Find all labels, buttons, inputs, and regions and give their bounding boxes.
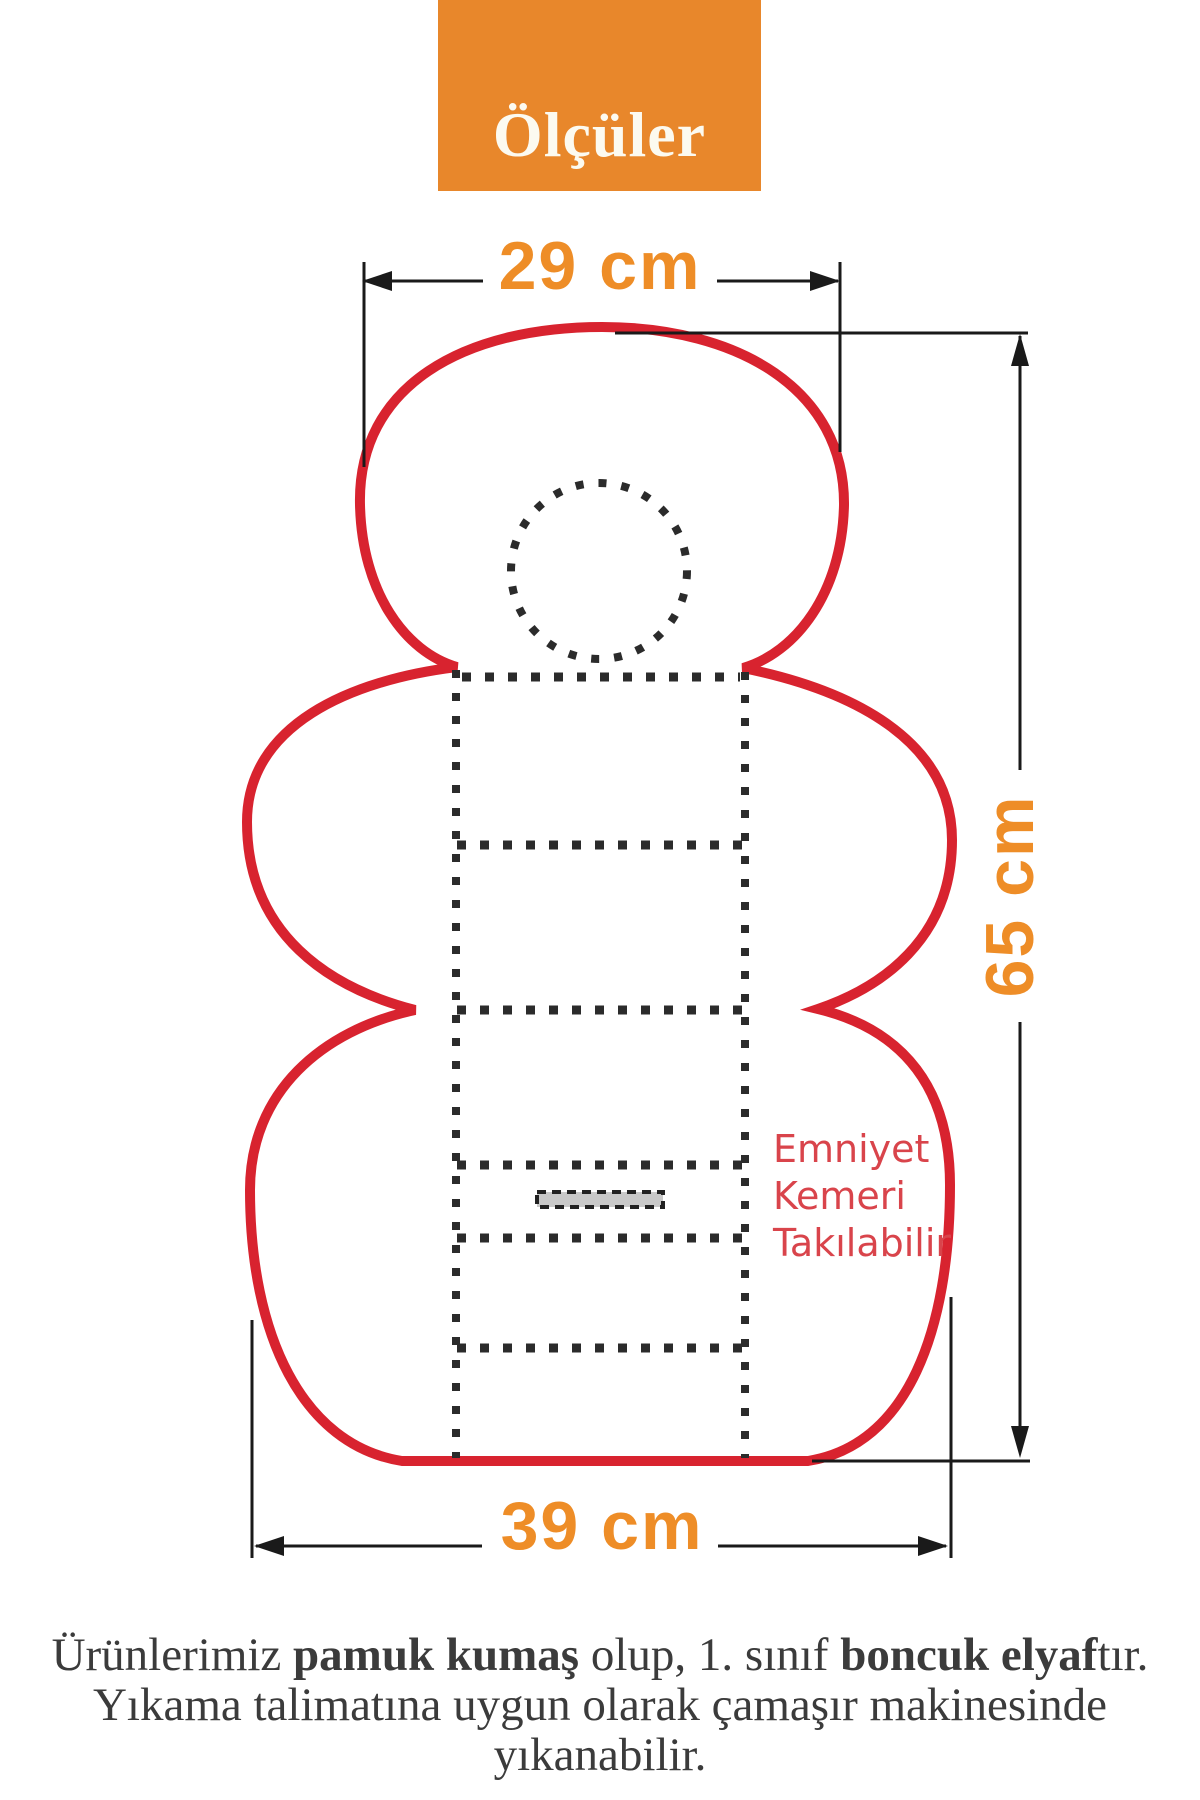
dim-bottom-width-label: 39 cm <box>442 1492 762 1560</box>
seat-outline <box>247 327 952 1461</box>
belt-slot <box>537 1192 663 1207</box>
page-title: Ölçüler <box>493 103 706 167</box>
belt-note: Emniyet Kemeri Takılabilir <box>773 1126 951 1267</box>
title-box: Ölçüler <box>438 0 761 191</box>
footer-line2: Yıkama talimatına uygun olarak çamaşır m… <box>0 1680 1200 1780</box>
arrow-down-icon <box>1011 1426 1029 1458</box>
belt-note-line2: Kemeri <box>773 1173 951 1220</box>
dim-height-lines <box>615 333 1030 1461</box>
footer-line1: Ürünlerimiz pamuk kumaş olup, 1. sınıf b… <box>0 1630 1200 1680</box>
stitch-circle-head-area <box>511 483 687 659</box>
arrow-right-icon <box>918 1536 948 1556</box>
dim-height-label: 65 cm <box>976 746 1048 1046</box>
footer-text: Ürünlerimiz pamuk kumaş olup, 1. sınıf b… <box>0 1630 1200 1780</box>
arrow-right-icon <box>810 271 840 291</box>
belt-note-line1: Emniyet <box>773 1126 951 1173</box>
diagram-page: Ölçüler 29 cm 65 cm 39 cm Emniyet Kemeri… <box>0 0 1200 1800</box>
belt-note-line3: Takılabilir <box>773 1220 951 1267</box>
arrow-left-icon <box>362 271 392 291</box>
arrow-left-icon <box>254 1536 284 1556</box>
dim-top-width-label: 29 cm <box>440 232 760 300</box>
arrow-up-icon <box>1011 334 1029 366</box>
